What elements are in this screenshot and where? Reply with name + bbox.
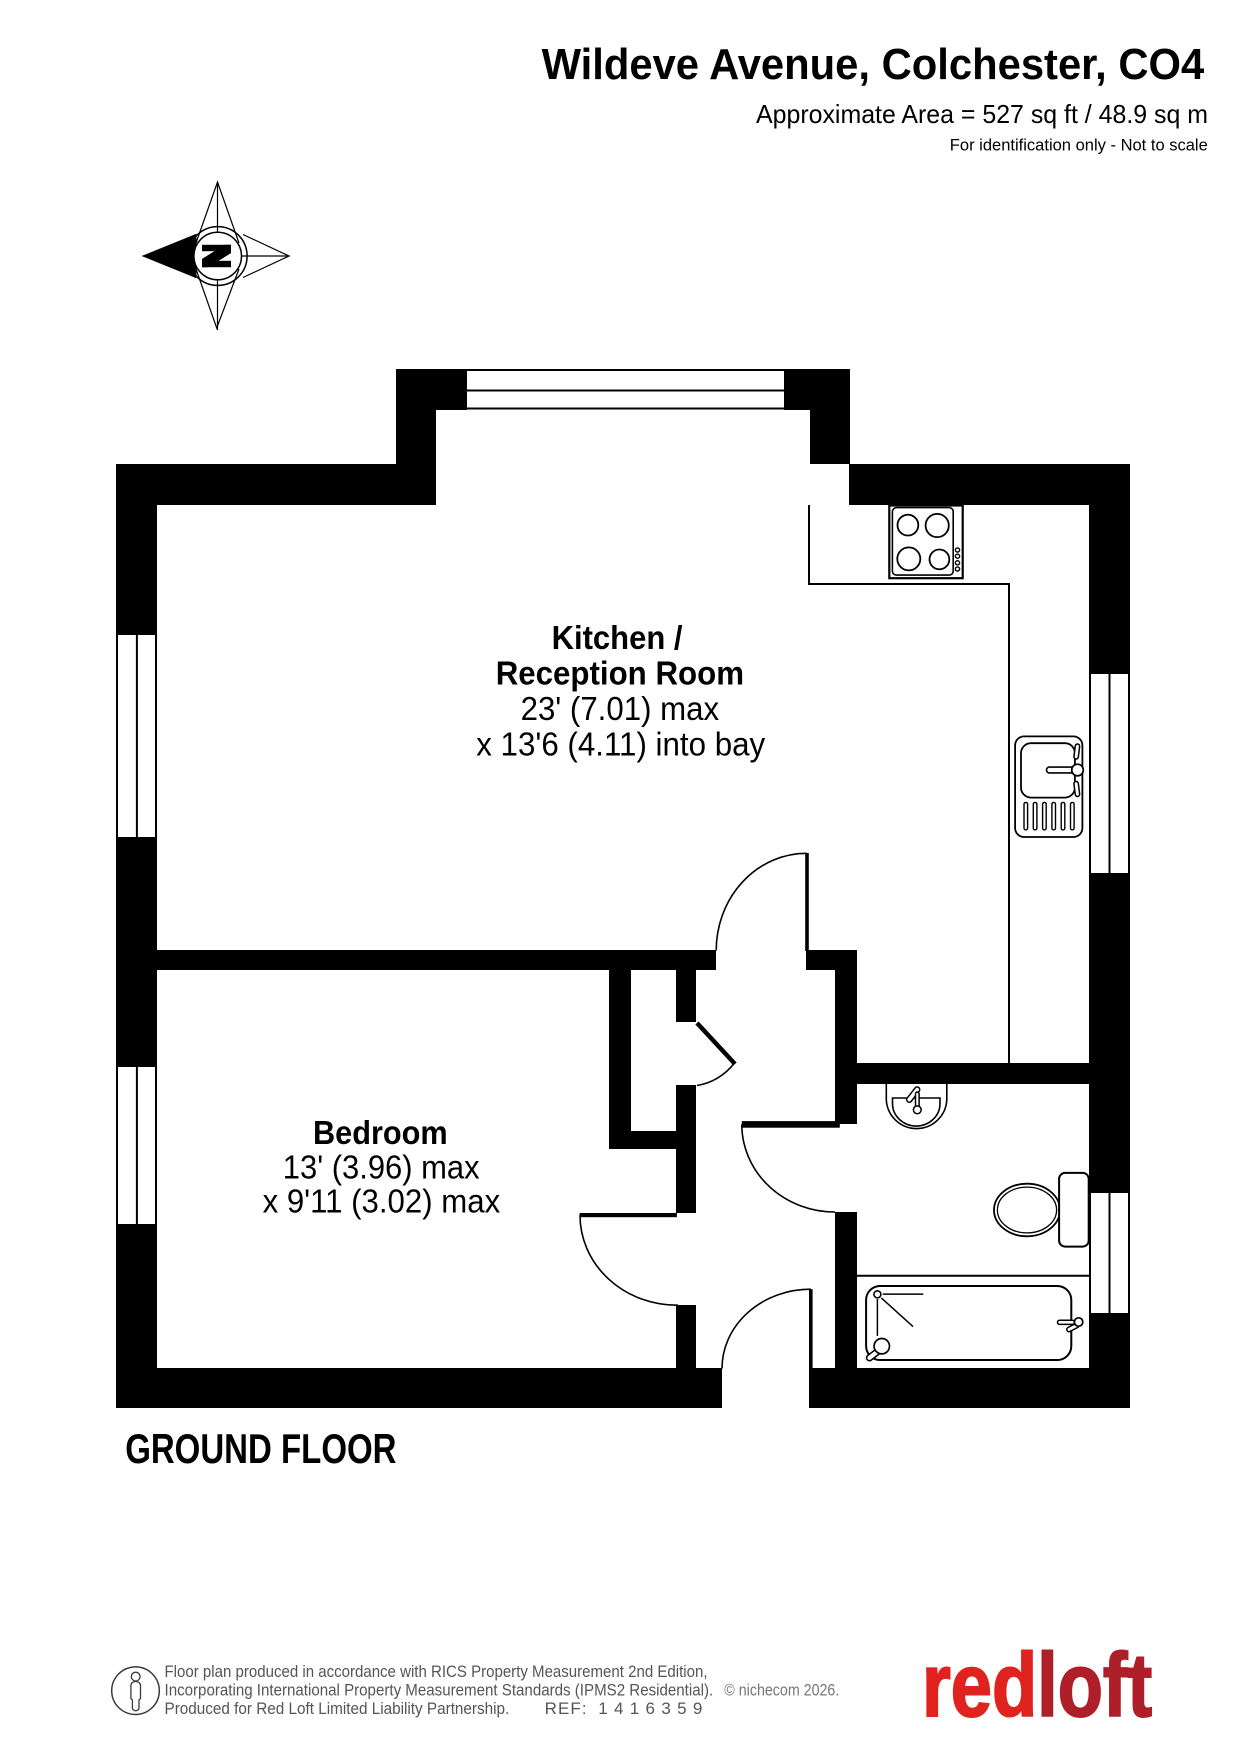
svg-text:1416359: 1416359: [598, 1699, 708, 1718]
svg-text:Wildeve Avenue, Colchester, CO: Wildeve Avenue, Colchester, CO4: [542, 40, 1205, 89]
svg-text:Bedroom: Bedroom: [313, 1115, 448, 1152]
svg-text:Produced for Red Loft Limited: Produced for Red Loft Limited Liability …: [165, 1699, 510, 1718]
svg-text:Reception Room: Reception Room: [496, 656, 744, 693]
svg-text:23' (7.01) max: 23' (7.01) max: [521, 691, 720, 728]
svg-text:x 9'11 (3.02) max: x 9'11 (3.02) max: [263, 1184, 501, 1221]
svg-text:redloft: redloft: [922, 1635, 1152, 1736]
svg-text:For identification only - Not: For identification only - Not to scale: [950, 136, 1208, 155]
svg-text:Approximate Area = 527 sq ft /: Approximate Area = 527 sq ft / 48.9 sq m: [756, 99, 1208, 129]
svg-text:REF:: REF:: [545, 1699, 588, 1718]
svg-text:GROUND FLOOR: GROUND FLOOR: [125, 1425, 396, 1472]
svg-text:13' (3.96) max: 13' (3.96) max: [283, 1149, 480, 1186]
svg-text:Kitchen /: Kitchen /: [552, 620, 683, 657]
svg-text:Floor plan produced in accorda: Floor plan produced in accordance with R…: [165, 1662, 708, 1681]
svg-text:x 13'6 (4.11) into bay: x 13'6 (4.11) into bay: [476, 727, 765, 764]
svg-text:© nichecom 2026.: © nichecom 2026.: [724, 1681, 839, 1700]
svg-text:Incorporating International Pr: Incorporating International Property Mea…: [165, 1681, 714, 1700]
